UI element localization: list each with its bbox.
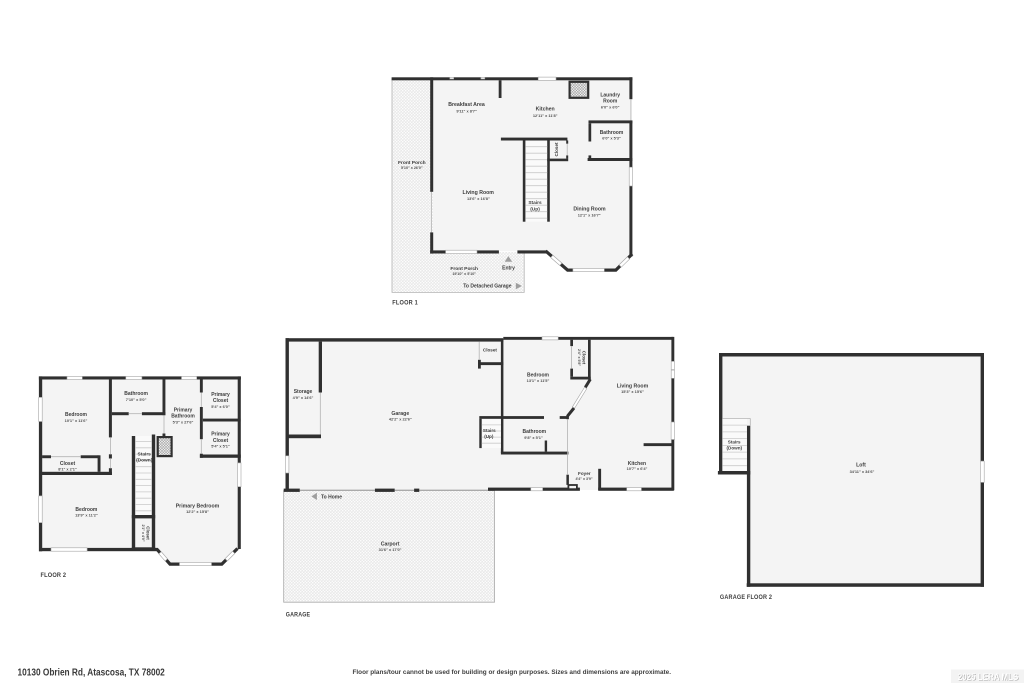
svg-text:Primary: Primary [174,407,193,413]
svg-text:6'0" x 5'3": 6'0" x 5'3" [602,136,621,141]
svg-text:Stairs: Stairs [728,439,741,444]
svg-text:6'0" x 6'0": 6'0" x 6'0" [601,104,620,109]
svg-text:FLOOR 2: FLOOR 2 [41,572,67,579]
svg-text:12'11" x 11'8": 12'11" x 11'8" [533,113,558,118]
svg-text:4'9" x 14'6": 4'9" x 14'6" [293,395,314,400]
svg-text:4'4" x 3'9": 4'4" x 3'9" [575,477,592,481]
svg-text:Stairs: Stairs [138,451,152,457]
svg-text:Closet: Closet [483,347,498,352]
svg-text:Closet: Closet [582,351,587,365]
svg-text:Breakfast Area: Breakfast Area [448,102,485,108]
svg-text:2'4" x 5'8": 2'4" x 5'8" [577,349,581,366]
svg-text:2025 LERA MLS: 2025 LERA MLS [958,672,1019,683]
svg-text:Front Porch: Front Porch [450,266,478,272]
svg-text:12'2" x 15'8": 12'2" x 15'8" [186,509,209,514]
svg-text:(Up): (Up) [484,434,494,439]
svg-text:Entry: Entry [502,266,515,272]
svg-text:Kitchen: Kitchen [536,107,555,113]
svg-text:15'3" x 15'6": 15'3" x 15'6" [621,389,644,394]
svg-text:10'7" x 6'4": 10'7" x 6'4" [627,466,648,471]
svg-text:To Home: To Home [321,494,342,500]
svg-text:5'4" x 5'1": 5'4" x 5'1" [211,444,230,449]
svg-text:GARAGE: GARAGE [286,611,311,618]
svg-text:GARAGE FLOOR 2: GARAGE FLOOR 2 [720,594,772,601]
svg-text:13'6" x 16'8": 13'6" x 16'8" [467,196,490,201]
svg-text:8'1" x 2'1": 8'1" x 2'1" [58,467,77,472]
svg-text:To Detached Garage: To Detached Garage [463,283,511,289]
svg-text:(Down): (Down) [136,458,153,464]
svg-text:Stairs: Stairs [483,428,496,433]
svg-text:19'10" x 5'10": 19'10" x 5'10" [452,272,476,276]
svg-text:Front Porch: Front Porch [398,160,426,166]
svg-text:Primary: Primary [211,392,230,398]
svg-text:10130 Obrien Rd, Atascosa, TX: 10130 Obrien Rd, Atascosa, TX 78002 [18,667,166,678]
svg-text:9'11" x 8'7": 9'11" x 8'7" [456,108,477,113]
svg-text:5'4" x 6'0": 5'4" x 6'0" [211,404,230,409]
svg-text:7'10" x 5'0": 7'10" x 5'0" [126,397,147,402]
svg-text:13'1" x 11'5": 13'1" x 11'5" [527,378,550,383]
svg-text:Closet: Closet [554,142,559,157]
svg-text:5'3" x 27'6": 5'3" x 27'6" [173,419,194,424]
svg-text:2'1" x 4'9": 2'1" x 4'9" [141,524,145,541]
svg-text:13'9" x 11'2": 13'9" x 11'2" [75,513,98,518]
svg-text:10'1" x 11'6": 10'1" x 11'6" [65,418,88,423]
svg-text:Stairs: Stairs [528,200,542,206]
svg-text:12'1" x 16'7": 12'1" x 16'7" [578,213,601,218]
svg-text:9'8" x 5'1": 9'8" x 5'1" [524,435,543,440]
svg-text:34'11" x 34'6": 34'11" x 34'6" [850,469,875,474]
svg-text:Floor plans/tour cannot be use: Floor plans/tour cannot be used for buil… [353,669,672,676]
svg-text:Laundry: Laundry [600,93,620,99]
svg-text:(Down): (Down) [727,446,743,451]
svg-text:(Up): (Up) [530,207,540,213]
svg-text:Closet: Closet [146,526,151,540]
svg-text:Loft: Loft [856,463,866,469]
svg-text:Foyer: Foyer [578,471,591,476]
svg-text:31'6" x 17'0": 31'6" x 17'0" [379,547,402,552]
svg-text:42'2" x 22'6": 42'2" x 22'6" [389,417,412,422]
svg-text:5'10" x 26'0": 5'10" x 26'0" [401,166,423,170]
svg-text:Primary: Primary [211,432,230,438]
svg-text:FLOOR 1: FLOOR 1 [392,300,418,307]
